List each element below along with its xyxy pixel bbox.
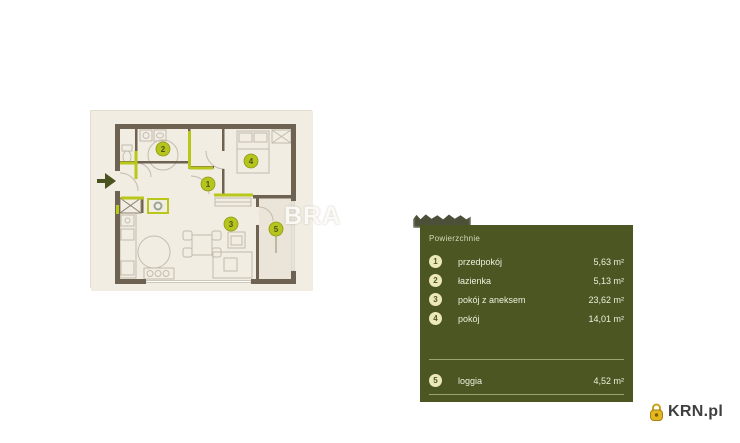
room-badge-4-num: 4 <box>249 157 254 166</box>
legend-title: Powierzchnie <box>429 234 624 243</box>
room-label: loggia <box>458 376 482 386</box>
room-label: łazienka <box>458 276 491 286</box>
floorplan-drawing: 1 2 3 4 5 <box>91 111 313 291</box>
listing-floorplan-image: 1 2 3 4 5 BRA Powierzchnie 1 przedpokój … <box>0 0 740 443</box>
legend-bottom-line <box>429 394 624 395</box>
room-label: przedpokój <box>458 257 502 267</box>
wall-bottom <box>115 279 146 284</box>
wall-right <box>291 124 296 201</box>
krn-logo: KRN.pl <box>648 402 723 422</box>
room-badge-5-num: 5 <box>274 225 279 234</box>
room-badge-2-num: 2 <box>161 145 166 154</box>
room-number-badge: 2 <box>429 274 442 287</box>
wall <box>256 225 259 279</box>
room-number-badge: 5 <box>429 374 442 387</box>
floorplan-card: 1 2 3 4 5 <box>90 110 312 288</box>
legend-panel: Powierzchnie 1 przedpokój 5,63 m² 2 łazi… <box>420 225 633 402</box>
room-badge-1-num: 1 <box>206 180 211 189</box>
legend-row: 2 łazienka 5,13 m² <box>429 271 624 290</box>
wall <box>256 195 259 207</box>
room-area: 23,62 m² <box>588 295 624 305</box>
wall-left <box>115 124 120 171</box>
legend-row: 1 przedpokój 5,63 m² <box>429 252 624 271</box>
loggia-window <box>292 201 294 271</box>
legend-divider <box>429 359 624 360</box>
room-label: pokój <box>458 314 480 324</box>
legend-row: 4 pokój 14,01 m² <box>429 309 624 328</box>
padlock-icon <box>648 402 665 422</box>
legend-row: 3 pokój z aneksem 23,62 m² <box>429 290 624 309</box>
room-area: 4,52 m² <box>593 376 624 386</box>
wall-bottom <box>251 279 296 284</box>
room-label: pokój z aneksem <box>458 295 526 305</box>
room-number-badge: 1 <box>429 255 442 268</box>
living-window <box>146 281 251 283</box>
krn-logo-text: KRN.pl <box>668 403 723 421</box>
room-number-badge: 4 <box>429 312 442 325</box>
legend-row-loggia: 5 loggia 4,52 m² <box>429 371 624 390</box>
wall <box>222 129 225 151</box>
loggia-floor <box>259 197 291 279</box>
wall-top <box>115 124 296 129</box>
room-area: 14,01 m² <box>588 314 624 324</box>
room-number-badge: 3 <box>429 293 442 306</box>
wall-left <box>115 191 120 284</box>
wall <box>222 169 225 195</box>
room-area: 5,63 m² <box>593 257 624 267</box>
room-badge-3-num: 3 <box>229 220 234 229</box>
room-area: 5,13 m² <box>593 276 624 286</box>
